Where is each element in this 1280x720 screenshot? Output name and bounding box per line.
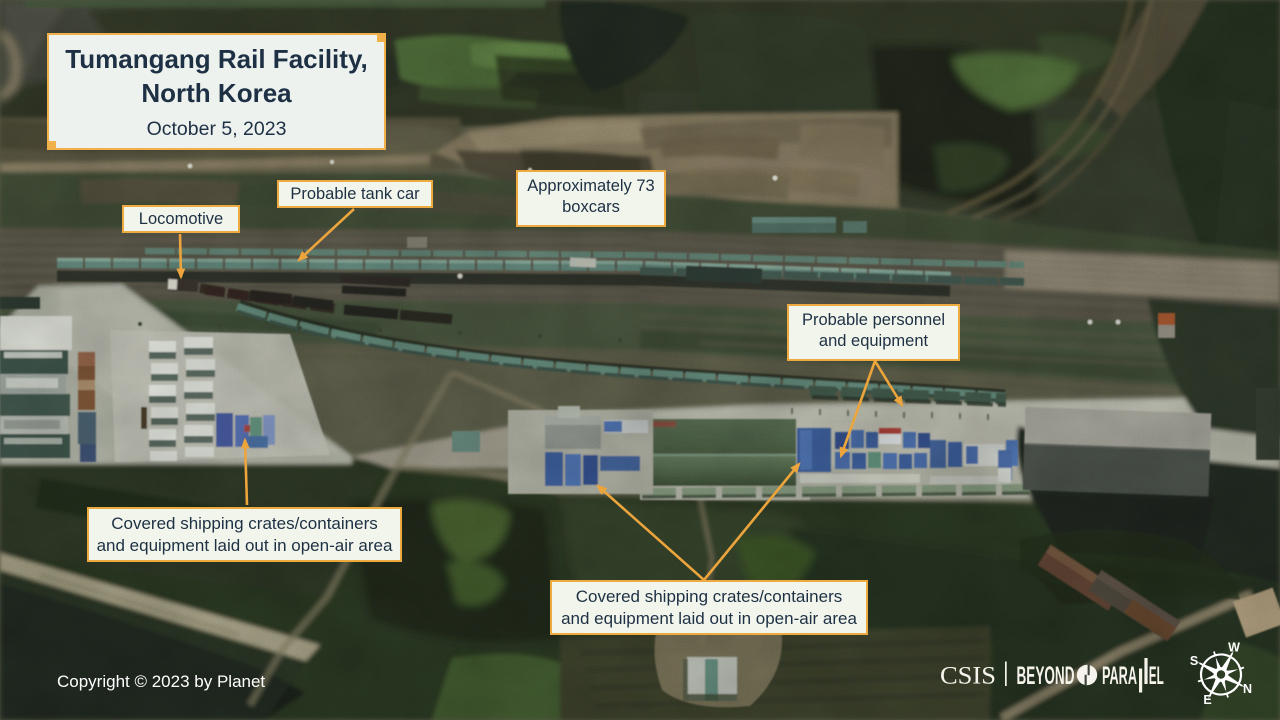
svg-text:S: S	[1190, 654, 1198, 668]
svg-text:CSIS: CSIS	[940, 661, 996, 690]
svg-text:N: N	[1243, 682, 1252, 696]
svg-text:PARA: PARA	[1102, 662, 1137, 690]
svg-text:W: W	[1228, 641, 1240, 655]
svg-text:EL: EL	[1149, 662, 1164, 690]
svg-text:BEYOND: BEYOND	[1017, 662, 1075, 690]
svg-text:E: E	[1203, 693, 1211, 707]
